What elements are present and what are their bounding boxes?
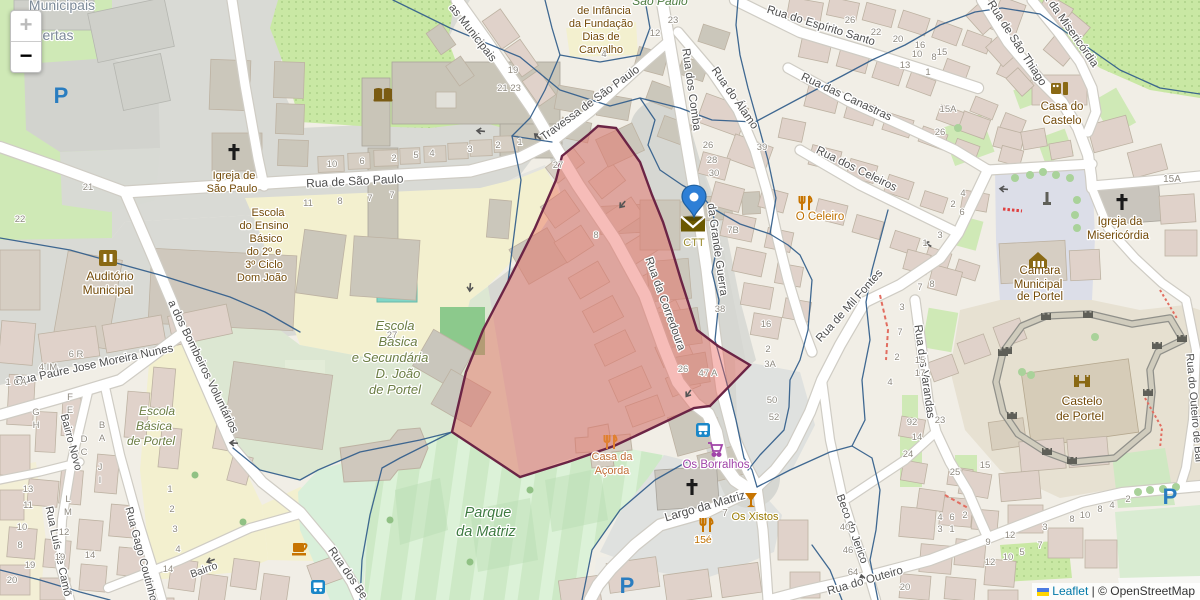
svg-text:Escola: Escola: [139, 404, 175, 418]
svg-text:P: P: [1163, 484, 1178, 509]
svg-text:38: 38: [715, 304, 726, 315]
svg-text:8: 8: [337, 196, 342, 207]
svg-text:8: 8: [593, 230, 598, 241]
svg-text:7B: 7B: [727, 225, 739, 236]
svg-text:16: 16: [761, 319, 772, 330]
svg-text:10: 10: [17, 522, 28, 533]
svg-text:F: F: [67, 392, 73, 403]
svg-text:50: 50: [767, 395, 778, 406]
svg-text:de Portel: de Portel: [1017, 291, 1063, 303]
svg-text:E: E: [67, 405, 73, 416]
svg-text:5: 5: [1019, 547, 1024, 558]
svg-text:G: G: [32, 407, 39, 418]
svg-text:São Paulo: São Paulo: [632, 0, 688, 8]
svg-text:M: M: [64, 507, 72, 518]
svg-text:4: 4: [960, 188, 965, 199]
svg-text:de Portel: de Portel: [1056, 409, 1104, 423]
svg-text:Auditório: Auditório: [86, 269, 134, 283]
svg-text:22: 22: [871, 27, 882, 38]
svg-text:15: 15: [915, 355, 926, 366]
svg-text:10: 10: [1080, 510, 1091, 521]
svg-text:4: 4: [887, 377, 892, 388]
svg-text:26: 26: [935, 127, 946, 138]
svg-text:8: 8: [17, 540, 22, 551]
svg-text:ertas: ertas: [42, 27, 73, 43]
svg-text:de Portel: de Portel: [127, 434, 175, 448]
svg-text:26: 26: [678, 364, 689, 375]
svg-text:64: 64: [848, 567, 859, 578]
svg-text:8: 8: [1069, 514, 1074, 525]
svg-text:5: 5: [413, 150, 418, 161]
svg-text:15: 15: [937, 47, 948, 58]
svg-text:Parque: Parque: [465, 505, 512, 521]
svg-text:14: 14: [912, 432, 923, 443]
svg-text:Castelo: Castelo: [1043, 115, 1082, 127]
svg-text:São Paulo: São Paulo: [207, 183, 258, 195]
svg-text:23: 23: [668, 15, 679, 26]
svg-text:H: H: [33, 420, 40, 431]
svg-text:da Matriz: da Matriz: [456, 524, 516, 540]
svg-text:1 CA: 1 CA: [5, 377, 27, 388]
svg-text:22: 22: [15, 214, 26, 225]
svg-text:4: 4: [1109, 500, 1114, 511]
svg-text:2: 2: [169, 504, 174, 515]
svg-text:3: 3: [467, 144, 472, 155]
svg-text:10: 10: [1003, 552, 1014, 563]
svg-text:6: 6: [959, 207, 964, 218]
svg-text:19: 19: [25, 560, 36, 571]
svg-text:2: 2: [950, 199, 955, 210]
svg-text:46: 46: [843, 545, 854, 556]
svg-text:25: 25: [950, 467, 961, 478]
svg-text:4 IM: 4 IM: [39, 362, 58, 373]
svg-text:3: 3: [899, 302, 904, 313]
svg-text:Municipal: Municipal: [83, 283, 134, 297]
svg-text:Básico: Básico: [249, 233, 282, 245]
svg-text:14: 14: [85, 550, 96, 561]
svg-text:47 A: 47 A: [698, 368, 718, 379]
svg-text:14: 14: [163, 564, 174, 575]
svg-text:26: 26: [845, 15, 856, 26]
svg-text:6: 6: [949, 512, 954, 523]
svg-text:Casa do: Casa do: [1041, 101, 1084, 113]
svg-text:A: A: [99, 433, 106, 444]
svg-text:26: 26: [703, 140, 714, 151]
svg-text:15: 15: [980, 460, 991, 471]
svg-text:7: 7: [367, 193, 372, 204]
svg-text:12: 12: [1005, 530, 1016, 541]
svg-text:2: 2: [962, 510, 967, 521]
svg-text:30: 30: [709, 168, 720, 179]
svg-text:1: 1: [517, 137, 522, 148]
svg-text:e Secundária: e Secundária: [352, 350, 429, 365]
svg-text:7: 7: [917, 282, 922, 293]
svg-text:3º Ciclo: 3º Ciclo: [245, 259, 283, 271]
svg-text:3A: 3A: [764, 359, 776, 370]
svg-text:Açorda: Açorda: [595, 465, 631, 477]
svg-text:Básica: Básica: [136, 419, 172, 433]
svg-text:P: P: [54, 83, 69, 108]
svg-text:2: 2: [894, 352, 899, 363]
svg-text:4: 4: [601, 49, 606, 60]
svg-text:12: 12: [650, 28, 661, 39]
svg-text:11: 11: [303, 198, 313, 209]
svg-text:CTT: CTT: [683, 237, 705, 249]
svg-text:3: 3: [937, 230, 942, 241]
svg-text:Igreja de: Igreja de: [213, 170, 256, 182]
svg-text:Casa da: Casa da: [592, 451, 634, 463]
svg-text:de Infância: de Infância: [577, 5, 632, 17]
svg-text:3: 3: [1042, 522, 1047, 533]
svg-text:Misericórdia: Misericórdia: [1087, 230, 1150, 242]
svg-text:8: 8: [1097, 504, 1102, 515]
svg-text:21: 21: [83, 182, 94, 193]
svg-text:20: 20: [900, 582, 911, 593]
svg-text:Escola: Escola: [251, 207, 285, 219]
svg-text:Os Xistos: Os Xistos: [731, 511, 779, 523]
svg-text:J: J: [98, 462, 103, 473]
svg-text:Os Borralhos: Os Borralhos: [682, 459, 749, 471]
svg-text:1: 1: [925, 67, 930, 78]
svg-text:24: 24: [903, 449, 914, 460]
svg-text:15é: 15é: [694, 534, 712, 546]
svg-text:9: 9: [985, 537, 990, 548]
svg-text:da Fundação: da Fundação: [569, 18, 633, 30]
svg-text:15A: 15A: [940, 104, 958, 115]
svg-text:6 R: 6 R: [69, 349, 84, 360]
svg-text:20: 20: [7, 575, 18, 586]
svg-text:2: 2: [1125, 494, 1130, 505]
svg-text:D: D: [81, 434, 88, 445]
svg-text:I: I: [99, 475, 102, 486]
svg-text:8: 8: [929, 279, 934, 290]
svg-text:17: 17: [915, 368, 926, 379]
svg-text:28: 28: [707, 155, 718, 166]
svg-text:4: 4: [429, 148, 434, 159]
svg-text:1: 1: [949, 524, 954, 535]
svg-text:39: 39: [757, 142, 768, 153]
svg-text:P: P: [620, 573, 635, 598]
svg-text:de Portel: de Portel: [369, 382, 422, 397]
svg-text:2: 2: [765, 344, 770, 355]
svg-text:52: 52: [769, 412, 780, 423]
svg-text:20: 20: [893, 34, 904, 45]
svg-text:Dias de: Dias de: [582, 31, 619, 43]
svg-text:13: 13: [900, 60, 911, 71]
svg-text:4: 4: [175, 544, 180, 555]
svg-text:19: 19: [508, 65, 519, 76]
svg-text:6: 6: [359, 156, 364, 167]
svg-text:D. João: D. João: [376, 366, 421, 381]
svg-text:27: 27: [553, 160, 564, 171]
svg-text:4: 4: [937, 512, 942, 523]
svg-text:21 23: 21 23: [497, 83, 521, 94]
svg-text:2: 2: [391, 153, 396, 164]
svg-text:Castelo: Castelo: [1062, 394, 1103, 408]
svg-text:O Celeiro: O Celeiro: [796, 211, 845, 223]
svg-text:L: L: [65, 494, 70, 505]
svg-text:27: 27: [387, 330, 398, 341]
svg-text:7: 7: [1037, 540, 1042, 551]
svg-text:2: 2: [495, 140, 500, 151]
svg-text:Dom João: Dom João: [237, 272, 287, 284]
svg-text:12: 12: [59, 527, 70, 538]
svg-text:10: 10: [912, 49, 923, 60]
svg-text:11: 11: [23, 500, 33, 511]
svg-text:1: 1: [922, 238, 927, 249]
svg-text:do 2º e: do 2º e: [247, 246, 282, 258]
svg-text:10: 10: [327, 159, 338, 170]
svg-text:C: C: [81, 447, 88, 458]
svg-text:do Ensino: do Ensino: [240, 220, 289, 232]
svg-text:8: 8: [931, 52, 936, 63]
svg-text:Igreja da: Igreja da: [1098, 216, 1143, 228]
svg-text:3: 3: [937, 524, 942, 535]
svg-text:12: 12: [985, 557, 996, 568]
svg-text:3: 3: [172, 524, 177, 535]
svg-text:1: 1: [167, 484, 172, 495]
svg-text:7: 7: [389, 190, 394, 201]
svg-text:40: 40: [840, 522, 851, 533]
svg-text:7: 7: [897, 327, 902, 338]
svg-text:19: 19: [55, 552, 66, 563]
svg-text:Municipal: Municipal: [1014, 279, 1063, 291]
svg-text:Básica: Básica: [378, 334, 417, 349]
svg-text:92: 92: [907, 417, 918, 428]
svg-text:7: 7: [722, 508, 728, 519]
svg-text:23: 23: [935, 415, 946, 426]
svg-text:15A: 15A: [1163, 174, 1181, 185]
svg-text:13: 13: [23, 484, 34, 495]
svg-text:B: B: [99, 420, 105, 431]
